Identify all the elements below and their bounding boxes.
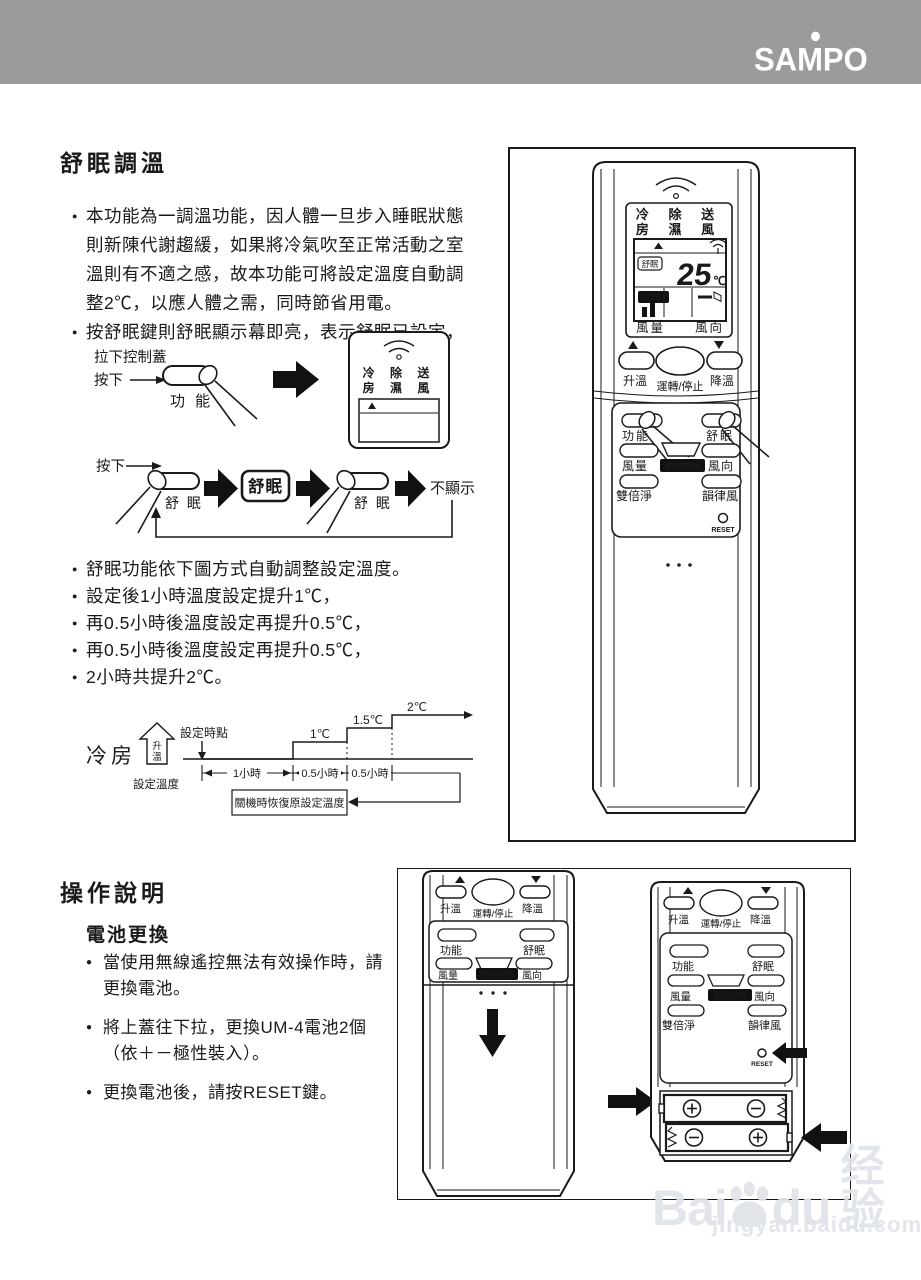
sleep-intro-list: ● 本功能為一調溫功能，因人體一旦步入睡眠狀態 則新陳代謝趨緩，如果將冷氣吹至正… xyxy=(72,202,492,347)
rise-label-bottom: 溫 xyxy=(152,752,162,763)
vane-label: 風向 xyxy=(754,990,775,1003)
mode-row1: 冷 除 送 xyxy=(636,207,722,222)
bullet-icon: ● xyxy=(72,664,86,691)
reset-note: 關機時恢復原設定溫度 xyxy=(235,796,345,810)
battery-subsection-title: 電池更換 xyxy=(86,920,170,947)
fan-label: 風量 xyxy=(438,970,458,982)
set-temp-label: 設定溫度 xyxy=(133,777,179,791)
timer-label: 預約定時 xyxy=(664,461,700,472)
reset-label: RESET xyxy=(751,1061,773,1068)
big-arrow-icon xyxy=(204,469,238,508)
arrowhead-icon xyxy=(151,507,161,518)
step-bullet: 設定後1小時溫度設定提升1℃， xyxy=(86,583,340,610)
line: 則新陳代謝趨緩，如果將冷氣吹至正常活動之室 xyxy=(86,231,464,260)
bullet-icon: ● xyxy=(72,202,86,231)
remote-cover-pull-drawing: 升溫 運轉/停止 降溫 功能 舒眠 風量 預約定時 風向 xyxy=(423,871,574,1196)
watermark-url: jingyan.baidu.com xyxy=(712,1212,921,1238)
cover-dot-icon xyxy=(666,563,670,567)
mode-row2: 房 濕 風 xyxy=(636,222,722,237)
step-bullet: 再0.5小時後溫度設定再提升0.5℃， xyxy=(86,610,372,637)
temp-down-label: 降溫 xyxy=(710,374,734,388)
interval-2: 0.5小時 xyxy=(301,767,338,780)
big-arrow-icon xyxy=(273,361,319,398)
op-bullet-2: 將上蓋往下拉，更換UM-4電池2個 （依＋－極性裝入）。 xyxy=(103,1015,367,1067)
bullet-icon: ● xyxy=(72,556,86,583)
line: 更換電池後，請按RESET鍵。 xyxy=(103,1080,337,1106)
step-bullet: 舒眠功能依下圖方式自動調整設定溫度。 xyxy=(86,556,410,583)
press-label-2: 按下 xyxy=(96,458,125,475)
step-line xyxy=(202,715,464,759)
run-stop-label: 運轉/停止 xyxy=(701,918,742,930)
temp-down-label: 降溫 xyxy=(522,902,543,915)
line: 溫則有不適之感，故本功能可將設定溫度自動調 xyxy=(86,260,464,289)
sleep-button-label-2: 舒 眠 xyxy=(354,495,392,511)
press-label: 按下 xyxy=(94,372,123,389)
list-item: ● 將上蓋往下拉，更換UM-4電池2個 （依＋－極性裝入）。 xyxy=(86,1015,406,1067)
bullet-icon: ● xyxy=(86,950,103,976)
temp-up-label: 升溫 xyxy=(623,374,647,388)
temp-up-button xyxy=(619,352,654,369)
reset-label: RESET xyxy=(711,527,735,534)
operation-section-title: 操作說明 xyxy=(60,874,168,908)
line: （依＋－極性裝入）。 xyxy=(103,1041,367,1067)
function-label: 功能 xyxy=(622,429,650,443)
step-bullet: 再0.5小時後溫度設定再提升0.5℃， xyxy=(86,637,372,664)
vane-label: 風向 xyxy=(695,320,724,335)
fan-label: 風量 xyxy=(670,991,691,1003)
level-1: 1℃ xyxy=(310,727,330,741)
battery-1 xyxy=(659,1095,786,1122)
timer-label: 預約定時 xyxy=(480,970,515,980)
list-item: ● 更換電池後，請按RESET鍵。 xyxy=(86,1080,406,1106)
temp-up-label: 升溫 xyxy=(668,914,689,926)
big-arrow-icon xyxy=(608,1087,656,1116)
big-arrow-icon xyxy=(395,470,426,507)
cool-mode-label: 冷房 xyxy=(86,745,136,768)
reset-button xyxy=(719,514,728,523)
timer-label: 預約定時 xyxy=(713,991,748,1001)
remote-figure-box: 冷 除 送 房 濕 風 舒眠 25 ℃ FUZZY 風量 風向 xyxy=(508,147,856,842)
sleep-badge-label: 舒眠 xyxy=(641,259,659,269)
finger-icon xyxy=(116,467,169,533)
vane-button-label: 風向 xyxy=(708,458,734,473)
sleep-flow-diagram: 拉下控制蓋 按下 功 能 冷 除 送 房 濕 風 按下 xyxy=(58,330,503,558)
run-stop-label: 運轉/停止 xyxy=(656,379,703,393)
brand-logo: SAMPO xyxy=(754,41,868,79)
bullet-icon: ● xyxy=(72,637,86,664)
sleep-label: 舒眠 xyxy=(706,429,734,443)
run-stop-label: 運轉/停止 xyxy=(473,908,514,920)
purify-label: 雙倍淨 xyxy=(616,488,652,503)
function-button-label: 功 能 xyxy=(170,393,213,410)
function-label: 功能 xyxy=(440,943,462,957)
line: 更換電池。 xyxy=(103,976,383,1002)
fan-bar-icon xyxy=(642,307,647,317)
fan-button-label: 風量 xyxy=(622,459,648,473)
arrowhead-icon xyxy=(464,711,473,719)
mode-row2: 房 濕 風 xyxy=(363,380,436,395)
list-item: ● 本功能為一調溫功能，因人體一旦步入睡眠狀態 則新陳代謝趨緩，如果將冷氣吹至正… xyxy=(72,202,492,318)
sleep-label: 舒眠 xyxy=(523,943,545,957)
bullet-icon: ● xyxy=(86,1015,103,1041)
op-bullet-3: 更換電池後，請按RESET鍵。 xyxy=(103,1080,337,1106)
run-stop-button xyxy=(656,347,704,375)
bullet-icon: ● xyxy=(72,583,86,610)
purify-label: 雙倍淨 xyxy=(662,1018,695,1032)
sleep-bullet-1: 本功能為一調溫功能，因人體一旦步入睡眠狀態 則新陳代謝趨緩，如果將冷氣吹至正常活… xyxy=(86,202,464,318)
arrowhead-icon xyxy=(348,797,358,807)
vane-button xyxy=(702,444,740,457)
line: 將上蓋往下拉，更換UM-4電池2個 xyxy=(103,1015,367,1041)
interval-1: 1小時 xyxy=(233,767,261,780)
temperature-unit: ℃ xyxy=(713,274,726,288)
bullet-icon: ● xyxy=(86,1080,103,1106)
cover-dot-icon xyxy=(677,563,681,567)
level-3: 2℃ xyxy=(407,700,427,714)
temp-down-label: 降溫 xyxy=(750,913,771,926)
arrowhead-icon xyxy=(152,462,162,470)
fan-bar-icon xyxy=(650,303,655,317)
set-point-label: 設定時點 xyxy=(180,725,228,740)
manual-page: SAMPO 舒眠調溫 ● 本功能為一調溫功能，因人體一旦步入睡眠狀態 則新陳代謝… xyxy=(0,0,921,1280)
reset-button xyxy=(758,1049,766,1057)
interval-3: 0.5小時 xyxy=(351,767,388,780)
mini-display-drawing: 冷 除 送 房 濕 風 xyxy=(349,332,449,448)
function-label: 功能 xyxy=(672,959,694,973)
op-bullet-1: 當使用無線遙控無法有效操作時，請 更換電池。 xyxy=(103,950,383,1002)
step-bullet: 2小時共提升2℃。 xyxy=(86,664,232,691)
remote-battery-drawing: 升溫 運轉/停止 降溫 功能 舒眠 風量 預約定時 風向 雙倍淨 韻律風 xyxy=(651,882,847,1161)
sleep-label: 舒眠 xyxy=(752,959,774,973)
mode-row1: 冷 除 送 xyxy=(363,365,436,380)
brand-logo-text: SAMPO xyxy=(754,41,868,78)
operation-list: ● 當使用無線遙控無法有效操作時，請 更換電池。 ● 將上蓋往下拉，更換UM-4… xyxy=(86,950,406,1119)
sleep-indicator-label: 舒眠 xyxy=(248,476,283,496)
line: 整2℃，以應人體之需，同時節省用電。 xyxy=(86,289,464,318)
remote-drawing: 冷 除 送 房 濕 風 舒眠 25 ℃ FUZZY 風量 風向 xyxy=(592,161,792,823)
rhythm-button xyxy=(702,475,741,488)
fan-button xyxy=(620,444,658,457)
vane-label: 風向 xyxy=(522,969,542,982)
rise-label-top: 升 xyxy=(152,741,162,752)
no-display-label: 不顯示 xyxy=(430,480,475,497)
sleep-button-label: 舒 眠 xyxy=(165,495,203,511)
line: 本功能為一調溫功能，因人體一旦步入睡眠狀態 xyxy=(86,202,464,231)
temp-down-button xyxy=(707,352,742,369)
timer-button xyxy=(662,443,700,456)
cover-dot-icon xyxy=(688,563,692,567)
pull-cover-label: 拉下控制蓋 xyxy=(94,349,167,366)
sleep-section-title: 舒眠調溫 xyxy=(60,144,168,178)
fuzzy-label: FUZZY xyxy=(640,293,668,303)
rhythm-label: 韻律風 xyxy=(702,488,738,503)
purify-button xyxy=(620,475,658,488)
bullet-icon: ● xyxy=(72,610,86,637)
sleep-steps-list: ● 舒眠功能依下圖方式自動調整設定溫度。 ● 設定後1小時溫度設定提升1℃， ●… xyxy=(72,556,410,691)
line: 當使用無線遙控無法有效操作時，請 xyxy=(103,950,383,976)
temperature-step-chart: 冷房 升 溫 設定溫度 設定時點 1℃ 1.5℃ 2℃ 1小時 0.5小時 xyxy=(60,693,490,825)
list-item: ● 當使用無線遙控無法有效操作時，請 更換電池。 xyxy=(86,950,406,1002)
brand-logo-dot-icon xyxy=(811,32,820,41)
level-2: 1.5℃ xyxy=(353,713,383,727)
temp-up-label: 升溫 xyxy=(440,903,461,915)
rhythm-label: 韻律風 xyxy=(748,1018,781,1032)
fan-label: 風量 xyxy=(636,321,665,335)
